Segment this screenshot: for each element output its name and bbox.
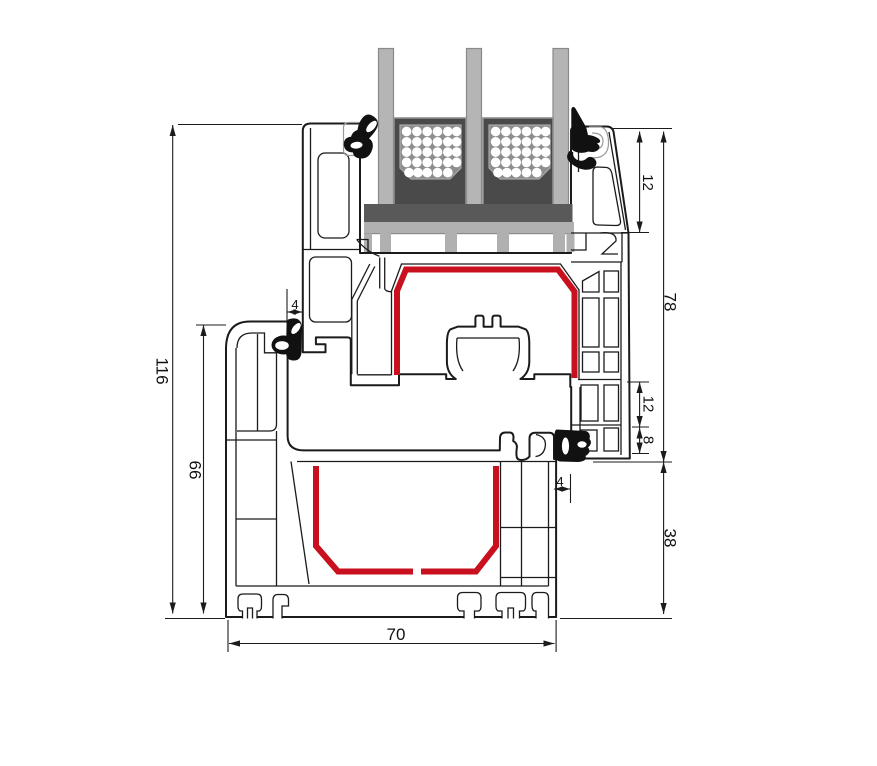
svg-text:78: 78 [661, 293, 680, 312]
svg-text:4: 4 [556, 474, 563, 489]
svg-text:12: 12 [639, 174, 656, 191]
svg-text:12: 12 [640, 396, 657, 413]
svg-text:38: 38 [661, 529, 680, 548]
svg-text:8: 8 [640, 436, 657, 444]
svg-text:70: 70 [387, 625, 406, 644]
svg-text:4: 4 [291, 297, 298, 312]
svg-text:116: 116 [153, 357, 172, 384]
svg-text:66: 66 [186, 461, 205, 480]
